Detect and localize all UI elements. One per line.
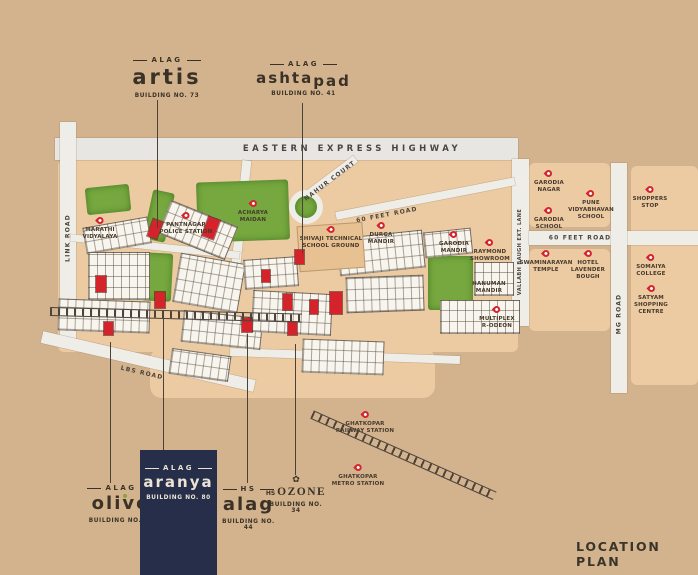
brand-name: ALAG: [163, 464, 194, 472]
ozone-name-row: HS OZONE: [266, 486, 326, 498]
building-number: BUILDING NO. 41: [256, 91, 351, 97]
map-pin-icon: [583, 249, 593, 259]
map-pin-icon: [646, 253, 656, 263]
road-label-60-feet-road-east: 60 FEET ROAD: [549, 235, 612, 242]
building-number: BUILDING NO. 73: [121, 93, 213, 99]
landmark-label: SHOPPERS STOP: [633, 196, 668, 210]
leader-line-hs-alag: [247, 334, 248, 483]
rose-icon: ✿: [266, 476, 326, 485]
landmark-label: SWAMINARAYAN TEMPLE: [519, 260, 572, 274]
landmark-label: SHIVAJI TECHNICAL SCHOOL GROUND: [300, 236, 363, 250]
landmark-label: MARATHI VIDYALAYA: [83, 227, 118, 241]
leader-line-aranya: [163, 310, 164, 450]
landmark-shivaji-technical-school-ground: SHIVAJI TECHNICAL SCHOOL GROUND: [300, 226, 363, 250]
map-pin-icon: [449, 230, 459, 240]
brand-name: ALAG: [105, 484, 136, 492]
red-building: [310, 300, 318, 314]
rule-line: [187, 60, 201, 61]
project-name: OZONE: [277, 486, 326, 498]
landmark-marathi-vidyalaya: MARATHI VIDYALAYA: [83, 217, 118, 241]
brand-name: HS: [241, 485, 257, 493]
landmark-ghatkopar-metro-station: GHATKOPAR METRO STATION: [332, 464, 385, 488]
landmark-label: SOMAIYA COLLEGE: [636, 264, 666, 278]
brand-name: ALAG: [151, 56, 182, 64]
landmark-label: SATYAM SHOPPING CENTRE: [634, 295, 668, 316]
brand-row: ALAG: [256, 60, 351, 68]
map-pin-icon: [353, 463, 363, 473]
project-name: ashtapad: [256, 69, 351, 87]
rule-line: [145, 468, 159, 469]
park: [85, 184, 132, 215]
red-building: [104, 322, 113, 335]
brand-name: ALAG: [288, 60, 319, 68]
leader-line-artis: [157, 100, 158, 228]
rule-line: [198, 468, 212, 469]
page-title: LOCATION PLAN: [576, 539, 698, 569]
building-cluster: [243, 256, 299, 290]
map-pin-icon: [376, 221, 386, 231]
logo-hs-ozone: ✿ HS OZONE BUILDING NO. 34: [266, 476, 326, 514]
leader-line-hs-ozone: [295, 344, 296, 475]
landmark-label: RAYMOND SHOWROOM: [470, 249, 510, 263]
landmark-garodia-school: GARODIA SCHOOL: [534, 207, 564, 231]
building-number: BUILDING NO. 34: [266, 502, 326, 514]
brand-row: ALAG: [121, 56, 213, 64]
map-pin-icon: [360, 410, 370, 420]
logo-alag-ashtapad: ALAG ashtapad BUILDING NO. 41: [256, 60, 351, 97]
landmark-ghatkopar-railway-station: GHATKOPAR RAILWAY STATION: [336, 411, 394, 435]
red-building: [288, 322, 297, 335]
building-number: BUILDING NO. 44: [221, 519, 276, 531]
landmark-satyam-shopping-centre: SATYAM SHOPPING CENTRE: [634, 285, 668, 316]
brand-row: ALAG: [140, 464, 217, 472]
landmark-hanuman-mandir: HANUMAN MANDIR: [472, 281, 506, 295]
landmark-label: GARODIA SCHOOL: [534, 217, 564, 231]
project-name: aranya: [140, 473, 217, 491]
landmark-raymond-showroom: RAYMOND SHOWROOM: [470, 239, 510, 263]
rule-line: [223, 489, 237, 490]
landmark-shoppers-stop: SHOPPERS STOP: [633, 186, 668, 210]
landmark-label: MULTIPLEX R-ODEON: [479, 316, 515, 330]
map-pin-icon: [248, 199, 258, 209]
map-pin-icon: [544, 169, 554, 179]
landmark-multiplex-r-odeon: MULTIPLEX R-ODEON: [479, 306, 515, 330]
logo-alag-artis: ALAG artis BUILDING NO. 73: [121, 56, 213, 99]
map-pin-icon: [544, 206, 554, 216]
map-pin-icon: [485, 238, 495, 248]
landmark-label: GARODIA MANDIR: [439, 241, 469, 255]
landmark-label: GHATKOPAR RAILWAY STATION: [336, 421, 394, 435]
building-cluster: [301, 339, 384, 376]
map-pin-icon: [95, 216, 105, 226]
map-pin-icon: [646, 284, 656, 294]
rule-line: [323, 64, 337, 65]
landmark-garodia-nagar: GARODIA NAGAR: [534, 170, 564, 194]
map-pin-icon: [326, 225, 336, 235]
landmark-label: PANTNAGAR POLICE STATION: [160, 222, 213, 236]
landmark-label: DURGA MANDIR: [368, 232, 394, 246]
red-building: [96, 276, 106, 292]
brand-name: HS: [266, 490, 275, 497]
leader-line-ashtapad: [302, 103, 303, 253]
landmark-label: ACHARYA MAIDAN: [238, 210, 268, 224]
project-name-sub: pad: [313, 72, 351, 90]
landmark-durga-mandir: DURGA MANDIR: [368, 222, 394, 246]
project-name-main: ashta: [256, 69, 313, 87]
project-name: artis: [121, 65, 213, 89]
landmark-swaminarayan-temple: SWAMINARAYAN TEMPLE: [519, 250, 572, 274]
landmark-label: GHATKOPAR METRO STATION: [332, 474, 385, 488]
road-label-mg-road: MG ROAD: [616, 294, 623, 335]
red-building: [330, 292, 342, 314]
map-pin-icon: [541, 249, 551, 259]
logo-alag-aranya-box: ALAG aranya BUILDING NO. 80: [140, 450, 217, 575]
road-label-link-road: LINK ROAD: [65, 214, 72, 262]
landmark-label: HOTEL LAVENDER BOUGH: [571, 260, 605, 281]
landmark-somaiya-college: SOMAIYA COLLEGE: [636, 254, 666, 278]
map-pin-icon: [181, 211, 191, 221]
rule-line: [270, 64, 284, 65]
map-pin-icon: [645, 185, 655, 195]
leader-line-olive: [110, 342, 111, 483]
landmark-garodia-mandir: GARODIA MANDIR: [439, 231, 469, 255]
rule-line: [133, 60, 147, 61]
landmark-label: PUNE VIDYABHAVAN SCHOOL: [568, 200, 614, 221]
landmark-pune-vidyabhavan-school: PUNE VIDYABHAVAN SCHOOL: [568, 190, 614, 221]
building-number: BUILDING NO. 80: [140, 495, 217, 501]
rule-line: [87, 488, 101, 489]
landmark-label: HANUMAN MANDIR: [472, 281, 506, 295]
map-pin-icon: [586, 189, 596, 199]
landmark-acharya-maidan: ACHARYA MAIDAN: [238, 200, 268, 224]
red-building: [283, 294, 292, 310]
landmark-pantnagar-police-station: PANTNAGAR POLICE STATION: [160, 212, 213, 236]
red-building: [155, 292, 165, 308]
building-cluster: [345, 275, 424, 314]
red-building: [262, 270, 270, 282]
road-label-eastern-express-highway: EASTERN EXPRESS HIGHWAY: [243, 144, 461, 154]
location-plan-canvas: EASTERN EXPRESS HIGHWAYLINK ROADLBS ROAD…: [0, 0, 698, 575]
landmark-hotel-lavender-bough: HOTEL LAVENDER BOUGH: [571, 250, 605, 281]
map-pin-icon: [492, 305, 502, 315]
landmark-label: GARODIA NAGAR: [534, 180, 564, 194]
